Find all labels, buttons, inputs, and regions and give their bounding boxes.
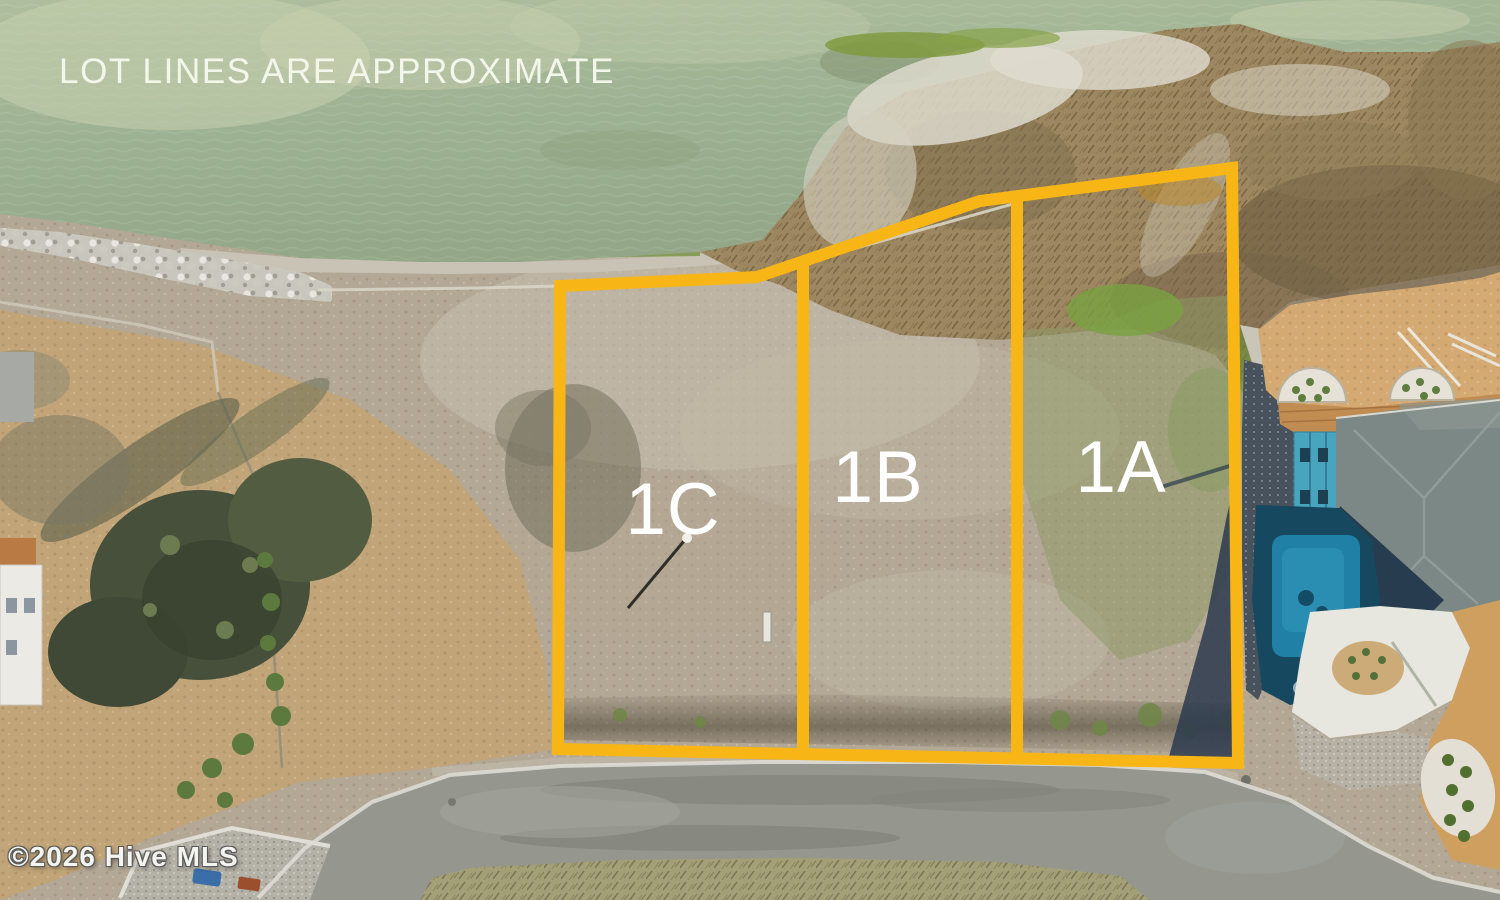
lot-label-1c: 1C — [625, 468, 720, 551]
lot-label-1a: 1A — [1075, 426, 1166, 509]
aerial-photo-canvas: LOT LINES ARE APPROXIMATE 1C 1B 1A ©2026… — [0, 0, 1500, 900]
disclaimer-text: LOT LINES ARE APPROXIMATE — [59, 52, 615, 92]
lot-label-1b: 1B — [832, 436, 923, 519]
watermark-text: ©2026 Hive MLS — [8, 841, 239, 873]
aerial-photo — [0, 0, 1500, 900]
